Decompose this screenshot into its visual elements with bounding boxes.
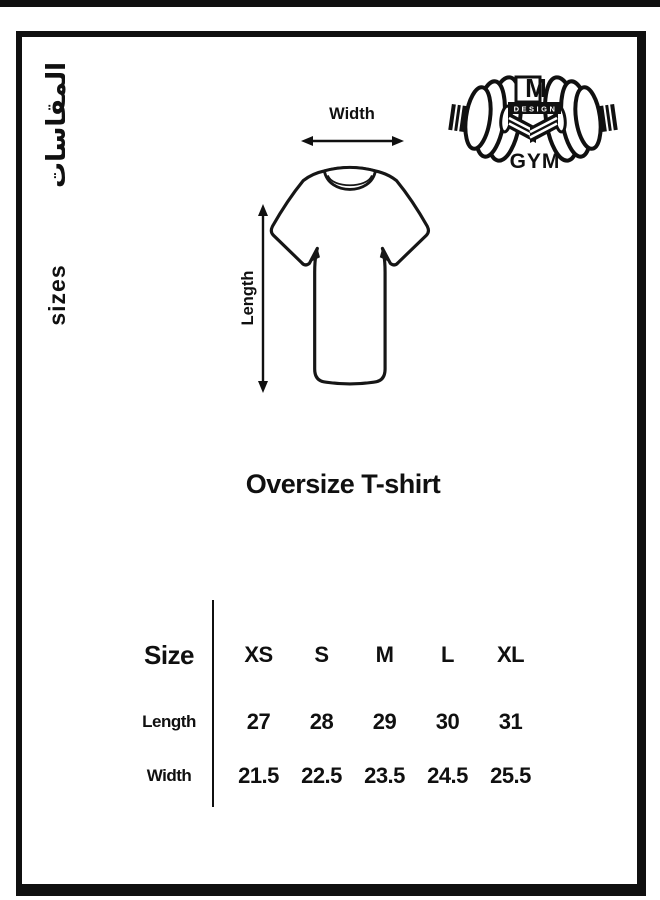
column-spacer (213, 710, 227, 734)
tshirt-diagram: Width Length (230, 95, 460, 425)
length-value-s: 28 (290, 710, 353, 734)
row-label-width: Width (125, 734, 213, 818)
width-value-m: 23.5 (353, 734, 416, 818)
width-value-xl: 25.5 (479, 734, 542, 818)
length-value-m: 29 (353, 710, 416, 734)
width-value-s: 22.5 (290, 734, 353, 818)
size-chart-page: المقاسات sizes Width Length (0, 0, 660, 900)
corner-header: Size (125, 600, 213, 710)
row-label-length: Length (125, 710, 213, 734)
length-arrow (258, 204, 268, 393)
width-label: Width (329, 105, 375, 123)
table-divider (212, 600, 214, 807)
english-sizes-label: sizes (43, 250, 71, 340)
length-value-l: 30 (416, 710, 479, 734)
design-text: DESIGN (514, 105, 558, 114)
length-value-xl: 31 (479, 710, 542, 734)
column-header-s: S (290, 600, 353, 710)
width-value-l: 24.5 (416, 734, 479, 818)
column-spacer (213, 734, 227, 818)
length-value-xs: 27 (227, 710, 290, 734)
gym-logo: M DESIGN GYM (448, 62, 620, 174)
length-label: Length (239, 271, 257, 326)
monogram-letter: M (525, 73, 547, 103)
product-title: Oversize T-shirt (133, 469, 553, 500)
column-header-l: L (416, 600, 479, 710)
width-arrow (301, 136, 404, 146)
top-border-bar (0, 0, 660, 7)
column-header-xl: XL (479, 600, 542, 710)
arabic-sizes-label: المقاسات (41, 52, 73, 198)
column-header-xs: XS (227, 600, 290, 710)
size-table: Size XS S M L XL Length 27 28 29 30 31 W… (125, 600, 542, 818)
width-value-xs: 21.5 (227, 734, 290, 818)
column-header-m: M (353, 600, 416, 710)
column-spacer (213, 600, 227, 710)
tshirt-outline (271, 167, 428, 383)
gym-text: GYM (510, 150, 561, 173)
